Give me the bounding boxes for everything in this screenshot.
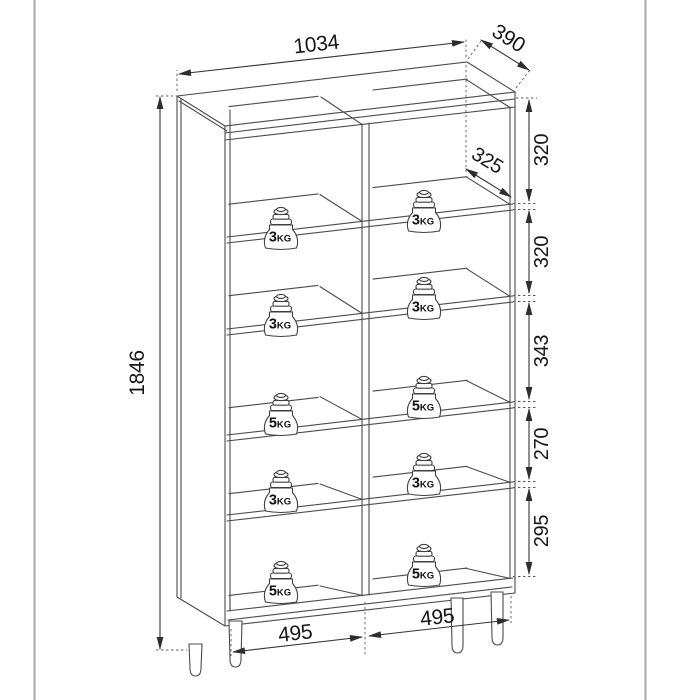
- dim-compartment-4-label: 270: [531, 428, 553, 461]
- leg-front-right: [491, 592, 503, 645]
- weight-icon-right-4: 3KG: [407, 453, 440, 495]
- leg-back-left: [189, 644, 202, 676]
- weight-icon-left-2: 3KG: [264, 294, 297, 336]
- cabinet-outline: [177, 62, 515, 626]
- shelf-load-weights: 3KG 3KG 5KG: [264, 190, 440, 603]
- weight-icon-right-5: 5KG: [407, 544, 440, 586]
- dim-height-label: 1846: [126, 350, 149, 396]
- weight-icon-right-1: 3KG: [407, 190, 440, 232]
- dim-compartment-3-label: 343: [531, 335, 553, 368]
- weight-icon-left-1: 3KG: [264, 207, 297, 249]
- weight-icon-right-2: 3KG: [407, 277, 440, 319]
- dim-bottom-width-left-label: 495: [277, 620, 313, 647]
- furniture-dimension-drawing: 3KG 3KG 5KG: [0, 0, 700, 700]
- dim-compartment-1-label: 320: [531, 134, 553, 167]
- legs: [189, 592, 503, 676]
- weight-icon-left-5: 5KG: [264, 561, 297, 603]
- dim-compartment-2-label: 320: [531, 236, 553, 269]
- weight-icon-left-4: 3KG: [264, 470, 297, 512]
- cabinet-top-face: [177, 62, 515, 126]
- dimension-annotations: 1034 390 1846 325 320 320 343 270 295 49…: [126, 20, 553, 656]
- weight-icon-right-3: 5KG: [407, 376, 440, 418]
- dim-compartment-5-label: 295: [531, 515, 553, 548]
- dim-depth-label: 390: [488, 20, 529, 58]
- weight-icon-left-3: 5KG: [264, 393, 297, 435]
- dim-width-label: 1034: [292, 31, 340, 59]
- dim-bottom-width-right-label: 495: [419, 604, 455, 631]
